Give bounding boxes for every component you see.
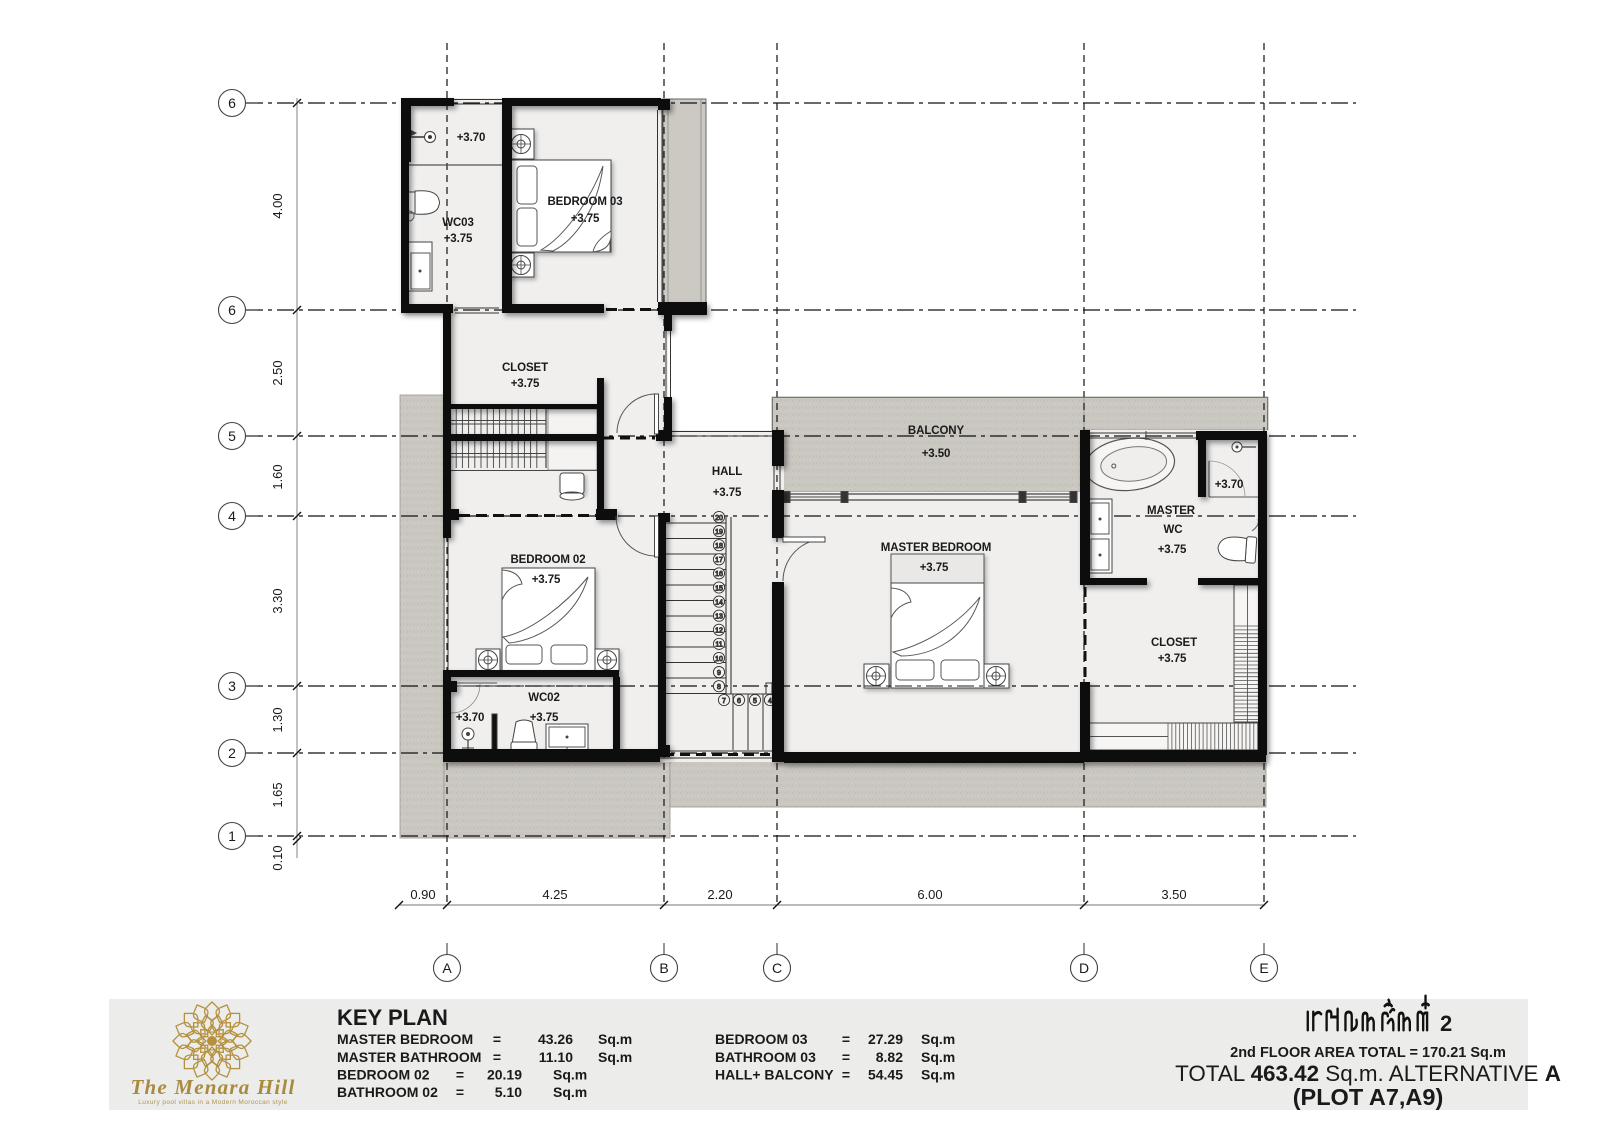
svg-text:+3.75: +3.75 bbox=[571, 213, 600, 225]
svg-text:BEDROOM 03: BEDROOM 03 bbox=[547, 196, 622, 208]
svg-text:14: 14 bbox=[715, 599, 723, 606]
svg-text:4: 4 bbox=[768, 698, 772, 705]
svg-text:1.65: 1.65 bbox=[270, 782, 285, 807]
svg-text:16: 16 bbox=[715, 571, 723, 578]
svg-text:=: = bbox=[842, 1031, 850, 1047]
svg-text:BATHROOM 02: BATHROOM 02 bbox=[337, 1084, 438, 1100]
svg-text:WC03: WC03 bbox=[442, 217, 474, 229]
svg-text:12: 12 bbox=[715, 628, 723, 635]
svg-text:5: 5 bbox=[753, 698, 757, 705]
svg-text:2nd FLOOR AREA TOTAL = 170.21: 2nd FLOOR AREA TOTAL = 170.21 Sq.m bbox=[1230, 1045, 1506, 1061]
svg-text:0.10: 0.10 bbox=[270, 845, 285, 870]
svg-text:3: 3 bbox=[228, 678, 236, 694]
svg-text:=: = bbox=[842, 1049, 850, 1065]
svg-text:+3.75: +3.75 bbox=[530, 712, 559, 724]
svg-text:3.50: 3.50 bbox=[1161, 887, 1186, 902]
svg-text:MASTER: MASTER bbox=[1147, 505, 1196, 517]
svg-text:C: C bbox=[772, 960, 782, 976]
svg-text:=: = bbox=[842, 1067, 850, 1083]
svg-text:11.10: 11.10 bbox=[539, 1049, 573, 1065]
svg-text:9: 9 bbox=[717, 670, 721, 677]
svg-text:+3.75: +3.75 bbox=[920, 562, 949, 574]
svg-text:2.50: 2.50 bbox=[270, 360, 285, 385]
svg-text:5.10: 5.10 bbox=[495, 1084, 522, 1100]
svg-text:=: = bbox=[456, 1084, 464, 1100]
svg-text:1.30: 1.30 bbox=[270, 707, 285, 732]
svg-text:Sq.m: Sq.m bbox=[553, 1084, 587, 1100]
svg-text:6: 6 bbox=[737, 698, 741, 705]
svg-text:20: 20 bbox=[715, 515, 723, 522]
svg-text:10: 10 bbox=[715, 656, 723, 663]
svg-text:7: 7 bbox=[722, 698, 726, 705]
svg-text:A: A bbox=[442, 960, 452, 976]
svg-text:11: 11 bbox=[715, 642, 722, 649]
svg-text:BEDROOM 02: BEDROOM 02 bbox=[510, 554, 585, 566]
svg-text:2.20: 2.20 bbox=[707, 887, 732, 902]
svg-text:1.60: 1.60 bbox=[270, 464, 285, 489]
svg-text:CLOSET: CLOSET bbox=[1151, 637, 1197, 649]
svg-text:KEY PLAN: KEY PLAN bbox=[337, 1005, 448, 1030]
svg-text:1: 1 bbox=[228, 828, 236, 844]
svg-text:TOTAL 463.42 Sq.m. ALTERNATIVE: TOTAL 463.42 Sq.m. ALTERNATIVE A bbox=[1175, 1061, 1561, 1086]
svg-text:20.19: 20.19 bbox=[487, 1067, 522, 1083]
svg-text:Sq.m: Sq.m bbox=[921, 1049, 955, 1065]
svg-text:Sq.m: Sq.m bbox=[921, 1031, 955, 1047]
svg-text:MASTER BEDROOM: MASTER BEDROOM bbox=[881, 542, 991, 554]
svg-text:43.26: 43.26 bbox=[538, 1031, 573, 1047]
svg-text:E: E bbox=[1259, 960, 1268, 976]
svg-text:B: B bbox=[659, 960, 668, 976]
svg-text:The Menara Hill: The Menara Hill bbox=[130, 1075, 295, 1099]
svg-text:=: = bbox=[493, 1031, 501, 1047]
svg-text:4.25: 4.25 bbox=[542, 887, 567, 902]
svg-text:Sq.m: Sq.m bbox=[553, 1067, 587, 1083]
svg-text:+3.70: +3.70 bbox=[456, 712, 485, 724]
svg-text:BEDROOM 02: BEDROOM 02 bbox=[337, 1067, 430, 1083]
svg-text:4: 4 bbox=[228, 508, 236, 524]
svg-text:27.29: 27.29 bbox=[868, 1031, 903, 1047]
svg-text:2: 2 bbox=[1440, 1011, 1452, 1036]
svg-text:8.82: 8.82 bbox=[876, 1049, 903, 1065]
svg-text:3.30: 3.30 bbox=[270, 588, 285, 613]
svg-text:WC02: WC02 bbox=[528, 692, 560, 704]
svg-text:15: 15 bbox=[715, 585, 723, 592]
svg-text:6.00: 6.00 bbox=[917, 887, 942, 902]
svg-text:2: 2 bbox=[228, 745, 236, 761]
svg-text:+3.75: +3.75 bbox=[713, 487, 742, 499]
svg-text:+3.70: +3.70 bbox=[457, 132, 486, 144]
svg-text:6: 6 bbox=[228, 302, 236, 318]
svg-text:+3.75: +3.75 bbox=[1158, 544, 1187, 556]
svg-text:5: 5 bbox=[228, 428, 236, 444]
svg-text:18: 18 bbox=[715, 543, 723, 550]
svg-text:MASTER BATHROOM: MASTER BATHROOM bbox=[337, 1049, 481, 1065]
svg-text:+3.75: +3.75 bbox=[511, 378, 540, 390]
svg-text:+3.75: +3.75 bbox=[1158, 653, 1187, 665]
svg-text:BEDROOM 03: BEDROOM 03 bbox=[715, 1031, 808, 1047]
svg-text:Sq.m: Sq.m bbox=[921, 1067, 955, 1083]
svg-text:Luxury pool villas in a Modern: Luxury pool villas in a Modern Moroccan … bbox=[138, 1099, 288, 1106]
svg-text:0.90: 0.90 bbox=[410, 887, 435, 902]
svg-text:=: = bbox=[456, 1067, 464, 1083]
svg-text:+3.70: +3.70 bbox=[1215, 479, 1244, 491]
svg-text:MASTER BEDROOM: MASTER BEDROOM bbox=[337, 1031, 473, 1047]
svg-text:=: = bbox=[493, 1049, 501, 1065]
svg-text:6: 6 bbox=[228, 95, 236, 111]
svg-text:HALL+ BALCONY: HALL+ BALCONY bbox=[715, 1067, 834, 1083]
svg-text:19: 19 bbox=[715, 529, 723, 536]
svg-text:8: 8 bbox=[717, 684, 721, 691]
svg-text:Sq.m: Sq.m bbox=[598, 1049, 632, 1065]
svg-text:BALCONY: BALCONY bbox=[908, 425, 965, 437]
svg-text:+3.75: +3.75 bbox=[444, 233, 473, 245]
svg-text:CLOSET: CLOSET bbox=[502, 362, 548, 374]
svg-text:HALL: HALL bbox=[712, 466, 742, 478]
svg-text:WC: WC bbox=[1164, 524, 1183, 536]
svg-text:13: 13 bbox=[715, 614, 723, 621]
svg-text:(PLOT A7,A9): (PLOT A7,A9) bbox=[1293, 1084, 1444, 1110]
svg-text:+3.50: +3.50 bbox=[922, 448, 951, 460]
svg-text:17: 17 bbox=[715, 557, 723, 564]
svg-text:Sq.m: Sq.m bbox=[598, 1031, 632, 1047]
svg-text:BATHROOM 03: BATHROOM 03 bbox=[715, 1049, 816, 1065]
svg-text:4.00: 4.00 bbox=[270, 193, 285, 218]
svg-text:54.45: 54.45 bbox=[868, 1067, 903, 1083]
svg-text:D: D bbox=[1079, 960, 1089, 976]
svg-text:+3.75: +3.75 bbox=[532, 574, 561, 586]
